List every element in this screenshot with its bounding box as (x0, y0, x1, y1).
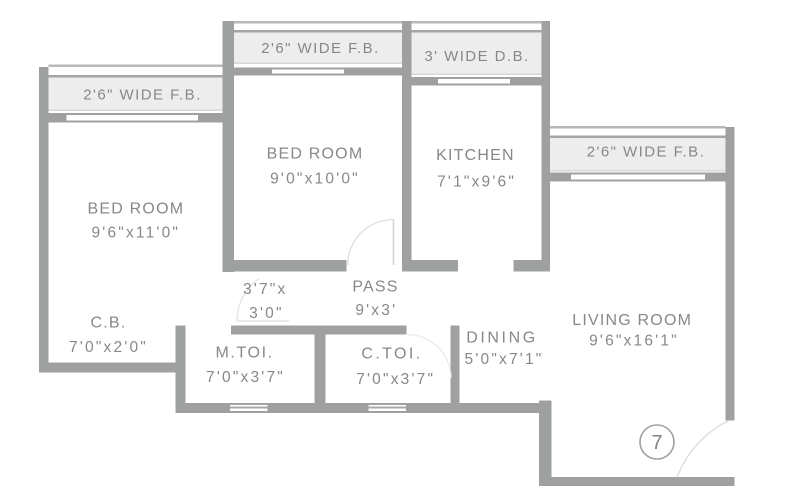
svg-text:M.TOI.: M.TOI. (215, 345, 273, 362)
svg-text:BED ROOM: BED ROOM (88, 201, 185, 218)
svg-text:C.TOI.: C.TOI. (361, 346, 422, 363)
svg-text:9'0"x10'0": 9'0"x10'0" (270, 171, 360, 188)
svg-text:2'6" WIDE F.B.: 2'6" WIDE F.B. (83, 87, 202, 104)
svg-text:BED ROOM: BED ROOM (267, 146, 364, 163)
svg-text:9'6"x11'0": 9'6"x11'0" (91, 225, 180, 242)
svg-text:DINING: DINING (466, 330, 538, 347)
svg-text:9'6"x16'1": 9'6"x16'1" (589, 333, 679, 350)
svg-text:5'0"x7'1": 5'0"x7'1" (465, 351, 544, 368)
svg-text:LIVING ROOM: LIVING ROOM (572, 312, 692, 329)
svg-text:9'x3': 9'x3' (355, 302, 397, 319)
svg-text:PASS: PASS (352, 279, 398, 296)
svg-text:C.B.: C.B. (91, 315, 127, 332)
svg-text:7'1"x9'6": 7'1"x9'6" (437, 174, 516, 191)
svg-text:2'6" WIDE F.B.: 2'6" WIDE F.B. (261, 40, 380, 57)
svg-text:7'0"x3'7": 7'0"x3'7" (356, 371, 435, 388)
svg-text:KITCHEN: KITCHEN (436, 147, 515, 164)
svg-text:3' WIDE D.B.: 3' WIDE D.B. (424, 48, 529, 65)
svg-text:3'0": 3'0" (249, 305, 284, 322)
svg-text:7'0"x3'7": 7'0"x3'7" (206, 369, 285, 386)
svg-text:3'7"x: 3'7"x (243, 281, 287, 298)
svg-text:7'0"x2'0": 7'0"x2'0" (69, 339, 148, 356)
svg-text:7: 7 (651, 432, 662, 454)
svg-text:2'6" WIDE F.B.: 2'6" WIDE F.B. (587, 144, 706, 161)
